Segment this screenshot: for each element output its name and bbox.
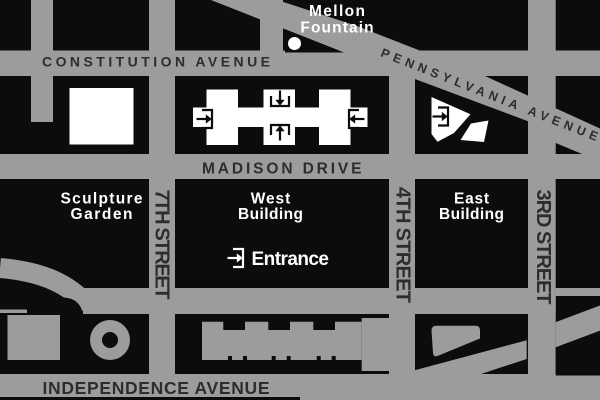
svg-text:Building: Building — [238, 206, 303, 223]
svg-text:3RD STREET: 3RD STREET — [532, 190, 554, 305]
svg-text:Sculpture: Sculpture — [61, 190, 143, 207]
svg-text:Building: Building — [439, 206, 504, 223]
svg-text:CONSTITUTION AVENUE: CONSTITUTION AVENUE — [42, 54, 270, 70]
svg-text:East: East — [454, 190, 489, 207]
svg-text:Entrance: Entrance — [252, 249, 330, 270]
svg-text:MADISON DRIVE: MADISON DRIVE — [202, 161, 362, 178]
svg-text:INDEPENDENCE AVENUE: INDEPENDENCE AVENUE — [43, 378, 270, 398]
svg-text:West: West — [251, 190, 291, 207]
svg-text:Mellon: Mellon — [309, 3, 365, 20]
svg-text:Garden: Garden — [71, 206, 133, 223]
svg-text:7TH STREET: 7TH STREET — [151, 190, 173, 300]
svg-text:Fountain: Fountain — [300, 20, 373, 37]
svg-text:4TH STREET: 4TH STREET — [392, 187, 414, 303]
